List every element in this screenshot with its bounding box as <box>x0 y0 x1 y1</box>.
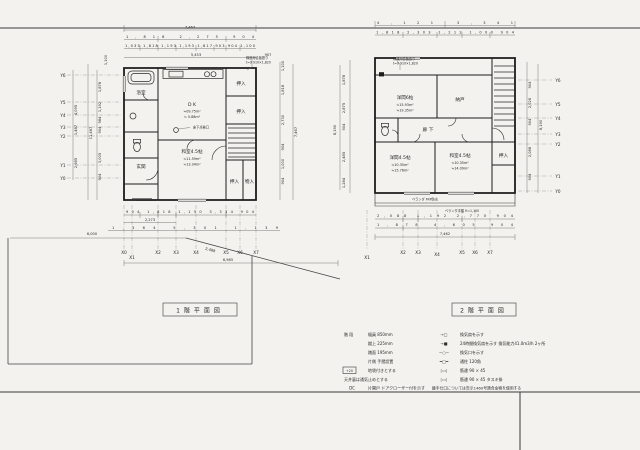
dim-right: 904 <box>281 143 285 151</box>
dim-left-b: 904 <box>98 126 102 134</box>
plan2-title: 2階平面図 <box>460 307 508 315</box>
x-axis-label: X5 <box>459 250 465 255</box>
legend-stairs-riser: 蹴上 225mm <box>368 340 393 346</box>
x-axis-label: X4 <box>193 250 199 255</box>
closet-label: 押入 <box>230 178 240 185</box>
y-axis-label: Y2 <box>554 142 561 147</box>
x-axis-label: X3 <box>415 250 421 255</box>
dim-left: 4,095 <box>74 105 78 115</box>
bathtub <box>128 71 154 84</box>
dim-left-b: 3,005 <box>98 153 102 163</box>
plan2-note-1: 構造用合板張り <box>393 56 415 61</box>
dim-right: 904 <box>528 81 532 89</box>
fan24-text: 24時間換気扇を示す 換気能力41.0m3/h 2ヶ所 <box>460 340 545 346</box>
dim-bottom-1: 2,088 1,192 2,770 904 <box>377 214 514 218</box>
dim-right-total: 8,190 <box>539 119 543 130</box>
dim-right: 2,088 <box>528 146 532 157</box>
kitchen-sink <box>169 71 183 77</box>
y-axis-label: Y3 <box>554 132 561 137</box>
dim-right: 904 <box>281 177 285 185</box>
hallway-label: 廊 下 <box>423 126 434 133</box>
legend: 階 段 幅員 850mm 蹴上 225mm 踏面 195mm 片側 手摺設置 +… <box>343 331 545 391</box>
dim-right: 2,026 <box>528 97 532 108</box>
x-axis-label: X0 <box>121 250 127 255</box>
room-yoma6-area2: ≒19.35m² <box>396 109 414 113</box>
y-axis-label: Y5 <box>59 100 66 105</box>
stairs-1f <box>228 128 256 157</box>
floor-hatch <box>174 128 179 133</box>
room-entrance: 玄関 <box>136 163 146 170</box>
post-symbol: ═□═ <box>439 359 449 364</box>
dim-bottom-1: 904 1,818 1,150 3,334 904 <box>126 210 255 214</box>
dim-right-total: 7,467 <box>294 127 298 137</box>
plan1-title: 1階平面図 <box>176 307 224 315</box>
legend-dc-symbol: DC <box>349 386 355 391</box>
legend-plus20-symbol: +20 <box>346 369 353 373</box>
washbasin <box>130 113 136 119</box>
dim-right: 1,100 <box>281 60 285 71</box>
legend-stairs-handrail: 片側 手摺設置 <box>368 358 393 364</box>
x-axis-label: X4 <box>434 252 440 257</box>
joint-hardware-note: 継手仕口については告示1460号適合金物を使用する <box>432 386 521 391</box>
room-dk-area1: ≒09.75m² <box>183 110 201 114</box>
plan1-door-arcs <box>143 93 226 180</box>
dim-bottom-4: 6,985 <box>223 258 233 262</box>
brace-x-text: 筋違 90 × 45 タスキ掛 <box>460 376 503 382</box>
veranda-rail-label: ベランダ手摺 H=1,100 <box>445 208 479 213</box>
plan2-door-arcs <box>392 118 504 142</box>
x-axis-label: X5 <box>223 250 229 255</box>
x-axis-label: X6 <box>472 250 478 255</box>
dim-left: 2,875 <box>342 103 346 113</box>
room-nando: 納戸 <box>455 96 465 103</box>
y-axis-label: Y2 <box>59 134 66 139</box>
y-axis-label: Y1 <box>59 163 66 168</box>
room-yoma45-area2: ≒15.76m² <box>391 169 409 173</box>
dim-left-total: 8,190 <box>333 124 337 135</box>
legend-stairs-width: 幅員 850mm <box>368 331 393 337</box>
dim-row-3: 1,033 1,818 1,193 1,193 1,817 903 904 1,… <box>125 44 256 48</box>
stove-burner-1 <box>205 72 210 77</box>
closet-label: 押入 <box>499 152 509 159</box>
dim-left-b: 1,192 <box>98 102 102 112</box>
site-dim-west: 6,000 <box>87 232 98 236</box>
room-washitsu-area2: ≒13.34m² <box>183 163 201 167</box>
plan1-grid-lines <box>67 75 256 254</box>
y-axis-label: Y0 <box>554 189 561 194</box>
room-yoma45-area1: ≒10.35m² <box>391 163 409 167</box>
room-washitsu45-area2: ≒14.09m² <box>451 167 469 171</box>
bathtub-inner <box>131 74 151 82</box>
dim-right: 2,730 <box>281 114 285 125</box>
legend-stairs-tread: 踏面 195mm <box>368 349 393 355</box>
y-axis-label: Y1 <box>554 174 561 179</box>
dim-left: 2,485 <box>342 152 346 162</box>
floor-hatch-label: 床下点検口 <box>193 125 209 130</box>
dim-top-1: 4,121 3,341 <box>377 21 513 25</box>
room-bath: 浴室 <box>136 89 146 96</box>
x-axis-label: X2 <box>155 250 161 255</box>
sheet-frame-lines <box>0 28 640 450</box>
legend-stairs-title: 階 段 <box>344 331 353 337</box>
y-axis-label: Y5 <box>554 102 561 107</box>
post-text: 通柱 120角 <box>460 358 481 364</box>
closet-label: 押入 <box>236 108 246 115</box>
x-axis-label: X7 <box>487 250 493 255</box>
dim-row-4a: 5,453 <box>191 53 201 57</box>
brace-text: 筋違 90 × 45 <box>460 367 486 373</box>
legend-ceiling-note: 天井裏は通気止めとする <box>344 376 388 382</box>
dim-left: 1,878 <box>342 74 346 85</box>
brace-symbol: ▷◁ <box>441 368 447 373</box>
y-axis-label: Y0 <box>59 176 66 181</box>
dim-row-2: 1,818 2,275 904 <box>126 35 255 39</box>
room-yoma6: 洋間6帖 <box>397 94 414 101</box>
fan24-symbol: →■ <box>440 341 447 346</box>
legend-dc-text: 片開戸 ドアクローザー付を示す <box>368 385 425 391</box>
plan2: 4,121 3,341 1,818 2,303 1,212 1,000 904 … <box>333 21 561 316</box>
room-washitsu45-area1: ≒10.35m² <box>451 161 469 165</box>
x-axis-label: X7 <box>253 250 259 255</box>
x-axis-label: X2 <box>400 250 406 255</box>
x-axis-label: X3 <box>173 250 179 255</box>
plan1: 7,467 1,818 2,275 904 1,033 1,818 1,193 … <box>10 25 338 316</box>
stairs-2f <box>494 66 515 126</box>
room-washitsu-area1: ≒11.59m² <box>183 157 201 161</box>
dim-total-width: 7,467 <box>185 26 195 30</box>
vent-fan-24h <box>379 72 384 76</box>
dim-left: 1,100 <box>104 54 108 65</box>
dim-left: 1,487 <box>74 125 78 135</box>
y-axis-label: Y3 <box>59 125 66 130</box>
closet-label: 押入 <box>236 80 246 87</box>
storage-label: 物入 <box>245 178 255 185</box>
room-dk: D K <box>188 102 197 108</box>
toilet-2f <box>382 126 389 135</box>
dim-bottom-2: 2,273 <box>145 218 155 222</box>
site-dim-diag: 2,488 <box>205 247 217 254</box>
dim-left-b: 904 <box>98 173 102 181</box>
floor-hatch-leader <box>178 128 190 130</box>
dim-bottom-2: 1,878 4,605 904 <box>377 223 514 227</box>
fan-text: 換気扇を示す <box>460 331 484 337</box>
dim-right: 1,818 <box>281 84 285 95</box>
room-dk-area2: ≒ 5.88m² <box>184 115 201 119</box>
y-axis-label: Y6 <box>59 73 66 78</box>
room-washitsu45: 和室4.5帖 <box>449 152 470 159</box>
room-yoma6-area1: ≒15.93m² <box>396 103 414 107</box>
dim-right: 904 <box>528 118 532 126</box>
dim-left-b: 984 <box>98 116 102 124</box>
dim-right: 904 <box>528 173 532 181</box>
vent-symbol: −○− <box>439 350 449 355</box>
site-boundary-lines <box>8 238 340 364</box>
x-axis-label: X1 <box>129 255 135 260</box>
dim-left: 904 <box>342 123 346 131</box>
dim-right: 1,000 <box>281 158 285 169</box>
room-yoma45: 洋間4.5帖 <box>389 154 410 161</box>
y-axis-label: Y4 <box>59 113 66 118</box>
plan1-note-1: 構造用合板張り <box>246 55 268 60</box>
dim-bottom-3: 7,462 <box>440 232 450 236</box>
room-washitsu: 和室4.5帖 <box>181 148 202 155</box>
y-axis-label: Y6 <box>554 78 561 83</box>
veranda-label: ベランダ FRP防水 <box>412 197 439 202</box>
dim-left-total: 11,467 <box>89 127 93 140</box>
legend-plus20-text: 地袋付きとする <box>368 367 396 373</box>
dim-left-b: 1,878 <box>98 81 102 92</box>
x-axis-label: X1 <box>364 255 370 260</box>
dim-left: 1,284 <box>342 177 346 188</box>
fan-symbol: →□ <box>440 332 447 337</box>
plan2-note-2: t=9 910×1,820 <box>393 62 418 66</box>
brace-x-symbol: ▷◁ <box>441 377 447 382</box>
y-axis-label: Y4 <box>554 116 561 121</box>
dim-bottom-3: 1,364 5,301 1,139 <box>112 226 279 230</box>
floor-plan-sheet: 7,467 1,818 2,275 904 1,033 1,818 1,193 … <box>0 0 640 450</box>
dim-left: 2,985 <box>74 158 78 168</box>
vent-text: 換気口を示す <box>460 349 484 355</box>
plan1-note-2: t=9 910×1,820 <box>246 61 271 65</box>
stove-burner-2 <box>211 72 216 77</box>
plan1-windows <box>123 67 206 202</box>
toilet <box>134 142 141 151</box>
plan2-dim-lines <box>340 21 538 240</box>
balcony-outline <box>375 193 515 206</box>
dim-top-2: 1,818 2,303 1,212 1,000 904 <box>376 31 515 35</box>
